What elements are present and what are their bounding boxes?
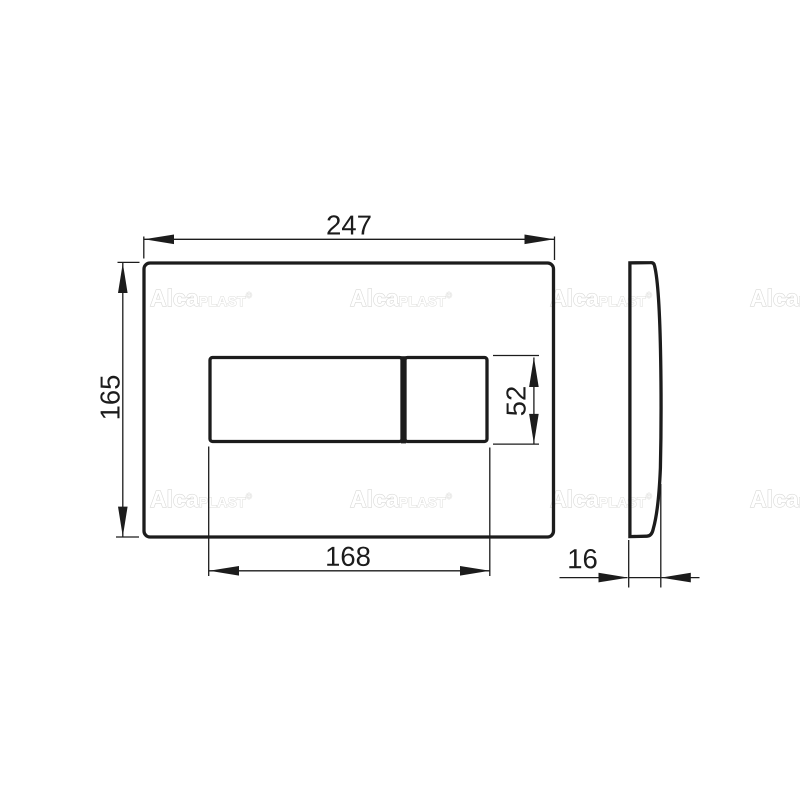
svg-text:AlcaPLAST®: AlcaPLAST®	[750, 486, 800, 512]
svg-text:AlcaPLAST®: AlcaPLAST®	[750, 285, 800, 311]
